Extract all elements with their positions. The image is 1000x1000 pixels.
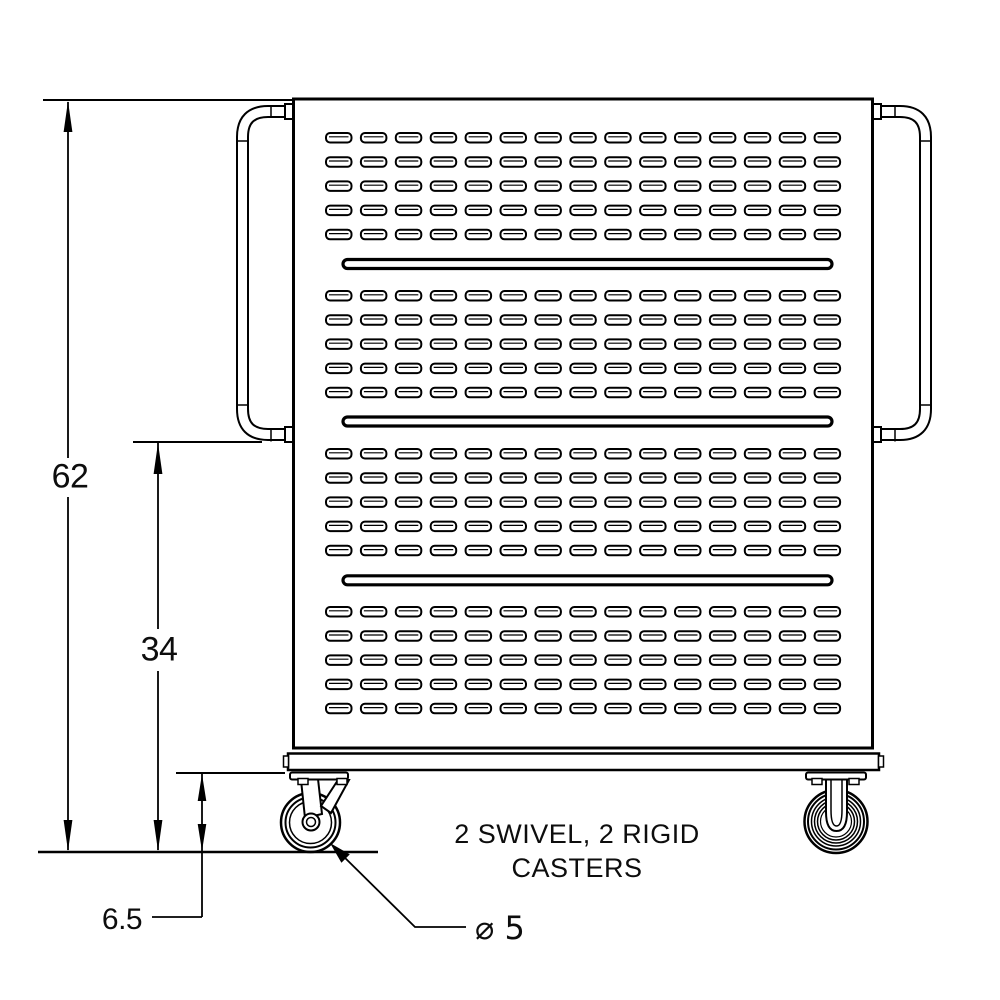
- vent-slot: [326, 291, 352, 301]
- vent-slot: [605, 546, 631, 556]
- vent-slot: [640, 315, 666, 325]
- vent-slot: [535, 704, 561, 714]
- vent-slot: [466, 388, 492, 398]
- vent-slot: [431, 181, 457, 191]
- vent-slot: [535, 364, 561, 374]
- vent-slot: [326, 364, 352, 374]
- right-handle: [873, 104, 932, 442]
- vent-slot: [501, 364, 527, 374]
- vent-slot: [535, 473, 561, 483]
- vent-slot: [780, 206, 806, 216]
- vent-slot: [501, 680, 527, 690]
- vent-slot: [361, 680, 387, 690]
- vent-slot: [466, 704, 492, 714]
- vent-slot: [710, 230, 736, 240]
- vent-slot: [780, 680, 806, 690]
- vent-slot: [745, 230, 771, 240]
- vent-slot: [501, 157, 527, 167]
- vent-slot: [815, 497, 841, 507]
- vent-slot: [710, 704, 736, 714]
- vent-slot: [431, 607, 457, 617]
- vent-slot: [815, 473, 841, 483]
- vent-slot: [466, 655, 492, 665]
- vent-slot: [675, 230, 701, 240]
- vent-slot: [745, 157, 771, 167]
- vent-slot: [815, 339, 841, 349]
- vent-slot: [466, 449, 492, 459]
- vent-slot: [780, 704, 806, 714]
- vent-slot: [710, 497, 736, 507]
- vent-slot: [675, 522, 701, 532]
- vent-slot: [780, 655, 806, 665]
- vent-slot: [535, 631, 561, 641]
- vent-slot: [815, 206, 841, 216]
- vent-slot: [361, 704, 387, 714]
- vent-slot: [326, 473, 352, 483]
- caster-diameter-label: ⌀ 5: [475, 909, 525, 947]
- vent-slot: [326, 546, 352, 556]
- base-rail-left-tab: [284, 756, 289, 767]
- vent-slot: [640, 546, 666, 556]
- vent-slot: [640, 230, 666, 240]
- left-handle: [237, 104, 294, 442]
- vent-slot: [640, 631, 666, 641]
- vent-slot: [361, 607, 387, 617]
- vent-slot: [501, 631, 527, 641]
- vent-slot: [640, 364, 666, 374]
- vent-slot: [326, 680, 352, 690]
- vent-slot: [780, 473, 806, 483]
- vent-slot: [361, 291, 387, 301]
- vent-slot: [780, 607, 806, 617]
- vent-slot: [605, 607, 631, 617]
- vent-slot: [361, 473, 387, 483]
- vent-slot: [466, 339, 492, 349]
- vent-slot: [745, 680, 771, 690]
- vent-slot: [361, 522, 387, 532]
- vent-slot: [815, 291, 841, 301]
- vent-slot: [745, 206, 771, 216]
- vent-slot: [710, 449, 736, 459]
- vent-slot: [745, 704, 771, 714]
- vent-slot: [466, 546, 492, 556]
- vent-slot: [640, 607, 666, 617]
- arrow-down: [64, 820, 73, 851]
- vent-slot: [815, 522, 841, 532]
- vent-slot: [466, 206, 492, 216]
- vent-slot: [640, 449, 666, 459]
- vent-slot: [745, 291, 771, 301]
- vent-slot: [605, 497, 631, 507]
- overall-height-label: 62: [52, 458, 89, 497]
- rigid-fork: [826, 777, 847, 831]
- vent-slot: [710, 473, 736, 483]
- vent-slot: [535, 497, 561, 507]
- vent-slot: [535, 230, 561, 240]
- caster-note: 2 SWIVEL, 2 RIGID CASTERS: [454, 817, 700, 885]
- vent-slot: [675, 607, 701, 617]
- vent-slot: [675, 704, 701, 714]
- vent-slot: [710, 546, 736, 556]
- arrow-up: [154, 443, 163, 474]
- vent-slot: [361, 157, 387, 167]
- vent-slot: [361, 655, 387, 665]
- long-vent-slot: [343, 260, 832, 269]
- vent-slot: [326, 497, 352, 507]
- vent-slot: [675, 364, 701, 374]
- vent-slot: [326, 157, 352, 167]
- vent-slot: [780, 546, 806, 556]
- vent-slot: [640, 522, 666, 532]
- vent-slot: [710, 157, 736, 167]
- vent-slot: [361, 449, 387, 459]
- vent-slot: [605, 655, 631, 665]
- vent-slot: [570, 473, 596, 483]
- vent-slot: [326, 522, 352, 532]
- vent-slot: [501, 704, 527, 714]
- vent-slot: [431, 133, 457, 143]
- vent-slot: [815, 388, 841, 398]
- vent-slot: [605, 181, 631, 191]
- arrow-up: [64, 101, 73, 132]
- vent-slot: [780, 449, 806, 459]
- vent-slot: [326, 181, 352, 191]
- vent-slot: [396, 680, 422, 690]
- caster-height-label: 6.5: [102, 903, 142, 937]
- vent-slot: [640, 680, 666, 690]
- arrow-down: [154, 820, 163, 851]
- vent-slot: [675, 449, 701, 459]
- vent-slot: [780, 364, 806, 374]
- vent-slot: [501, 449, 527, 459]
- vent-slot: [675, 315, 701, 325]
- vent-slot: [535, 655, 561, 665]
- vent-slot: [570, 680, 596, 690]
- vent-slot: [501, 388, 527, 398]
- vent-slot: [605, 339, 631, 349]
- vent-slot: [675, 631, 701, 641]
- vent-slot: [640, 339, 666, 349]
- vent-slot: [675, 157, 701, 167]
- vent-slot: [710, 181, 736, 191]
- vent-slot: [710, 607, 736, 617]
- right-handle-top-bracket: [873, 104, 881, 119]
- rigid-caster: [805, 773, 868, 854]
- vent-slot: [570, 704, 596, 714]
- vent-slot: [535, 133, 561, 143]
- vent-slot: [535, 339, 561, 349]
- vent-slot: [431, 230, 457, 240]
- vent-slot: [501, 206, 527, 216]
- vent-slot: [675, 388, 701, 398]
- vent-slot: [710, 522, 736, 532]
- vent-slot: [535, 157, 561, 167]
- vent-slot: [815, 364, 841, 374]
- vent-slot: [501, 181, 527, 191]
- vent-slot: [535, 206, 561, 216]
- vent-slot: [780, 181, 806, 191]
- vent-slot: [570, 497, 596, 507]
- right-handle-bottom-bracket: [873, 427, 881, 442]
- vent-slot: [745, 449, 771, 459]
- vent-slot: [361, 497, 387, 507]
- vent-slot: [605, 388, 631, 398]
- vent-slot: [466, 497, 492, 507]
- vent-slot: [431, 522, 457, 532]
- vent-slot: [361, 546, 387, 556]
- vent-slot: [710, 315, 736, 325]
- vent-slot: [675, 291, 701, 301]
- vent-slot: [570, 206, 596, 216]
- vent-slot: [466, 364, 492, 374]
- vent-slot: [745, 339, 771, 349]
- vent-slot: [501, 546, 527, 556]
- vent-slot: [535, 388, 561, 398]
- vent-slot: [326, 631, 352, 641]
- vent-slot: [535, 607, 561, 617]
- vent-slot: [570, 364, 596, 374]
- vent-slot: [396, 157, 422, 167]
- vent-slot: [815, 315, 841, 325]
- vent-slot: [640, 388, 666, 398]
- vent-slot: [396, 364, 422, 374]
- vent-slot: [501, 522, 527, 532]
- vent-slot: [361, 315, 387, 325]
- vent-slot: [570, 230, 596, 240]
- vent-slot: [675, 133, 701, 143]
- vent-slot: [466, 315, 492, 325]
- cart-body: [38, 99, 932, 853]
- vent-slot: [675, 473, 701, 483]
- vent-slot: [431, 704, 457, 714]
- vent-slot: [745, 546, 771, 556]
- vent-slot: [605, 680, 631, 690]
- vent-slot: [640, 133, 666, 143]
- vent-slot: [745, 607, 771, 617]
- left-handle-bottom-bracket: [285, 427, 293, 442]
- diameter-leader: [330, 843, 466, 927]
- vent-slot: [745, 655, 771, 665]
- vent-slot: [570, 388, 596, 398]
- vent-slot: [745, 364, 771, 374]
- vent-slot: [396, 230, 422, 240]
- vent-slot: [780, 339, 806, 349]
- vent-slot: [466, 181, 492, 191]
- vent-slot: [780, 133, 806, 143]
- vent-slot: [361, 230, 387, 240]
- vent-slot: [675, 497, 701, 507]
- vent-slot: [396, 497, 422, 507]
- vent-slot: [710, 133, 736, 143]
- vent-slot: [815, 607, 841, 617]
- vent-slot: [501, 291, 527, 301]
- vent-slot: [431, 497, 457, 507]
- vent-slot: [466, 291, 492, 301]
- vent-slot: [570, 181, 596, 191]
- vent-slot: [780, 230, 806, 240]
- vent-slot: [640, 473, 666, 483]
- vent-slot: [570, 339, 596, 349]
- vent-slot: [396, 339, 422, 349]
- vent-slot: [570, 607, 596, 617]
- vent-slot: [570, 157, 596, 167]
- vent-slot: [745, 473, 771, 483]
- vent-slot: [396, 388, 422, 398]
- vent-slot: [396, 631, 422, 641]
- vent-slot: [535, 522, 561, 532]
- vent-slot: [326, 388, 352, 398]
- vent-slot: [780, 522, 806, 532]
- vent-slot: [535, 680, 561, 690]
- vent-slot: [396, 704, 422, 714]
- vent-slot: [815, 704, 841, 714]
- vent-slot: [815, 181, 841, 191]
- vent-slot: [710, 364, 736, 374]
- vent-slot: [570, 291, 596, 301]
- vent-slot: [570, 631, 596, 641]
- handle-height-label: 34: [141, 631, 178, 670]
- vent-slot: [501, 339, 527, 349]
- vent-slot: [466, 230, 492, 240]
- vent-slot: [466, 607, 492, 617]
- vent-slot: [466, 473, 492, 483]
- vent-slot: [431, 315, 457, 325]
- vent-slot: [396, 291, 422, 301]
- long-vent-slot: [343, 417, 832, 426]
- vent-slot: [396, 206, 422, 216]
- vent-slot: [745, 497, 771, 507]
- vent-slot: [361, 631, 387, 641]
- vent-slot: [326, 133, 352, 143]
- vent-slot: [745, 315, 771, 325]
- vent-slot: [501, 133, 527, 143]
- vent-slot: [361, 133, 387, 143]
- vent-slot: [815, 157, 841, 167]
- vent-slot: [710, 680, 736, 690]
- vent-slot: [501, 230, 527, 240]
- vent-slot: [605, 157, 631, 167]
- vent-slot: [780, 388, 806, 398]
- vent-slot: [605, 473, 631, 483]
- vent-slot: [815, 631, 841, 641]
- vent-slot: [710, 388, 736, 398]
- vent-slot: [535, 449, 561, 459]
- vent-slot: [780, 315, 806, 325]
- vent-slot: [675, 206, 701, 216]
- vent-slot: [431, 291, 457, 301]
- vent-slot: [710, 631, 736, 641]
- vent-slot: [605, 206, 631, 216]
- vent-slot: [745, 631, 771, 641]
- vent-slot: [466, 680, 492, 690]
- vent-slot: [815, 133, 841, 143]
- vent-slot: [396, 449, 422, 459]
- vent-slot: [710, 206, 736, 216]
- vent-slot: [501, 315, 527, 325]
- vent-slot: [396, 546, 422, 556]
- vent-slot: [640, 655, 666, 665]
- vent-slot: [605, 704, 631, 714]
- vent-slot: [605, 631, 631, 641]
- vent-slot: [640, 181, 666, 191]
- vent-slot: [466, 631, 492, 641]
- vent-slot: [570, 315, 596, 325]
- vent-slot: [640, 206, 666, 216]
- base-rail: [284, 754, 884, 771]
- vent-slot: [431, 388, 457, 398]
- vent-slot: [780, 497, 806, 507]
- vent-slot: [501, 607, 527, 617]
- vent-slot: [605, 522, 631, 532]
- vent-slot: [326, 339, 352, 349]
- vent-slot: [570, 133, 596, 143]
- vent-slot: [396, 522, 422, 532]
- vent-slot: [815, 230, 841, 240]
- vent-slot: [675, 680, 701, 690]
- vent-slot: [605, 364, 631, 374]
- vent-slot: [745, 181, 771, 191]
- caster-note-line2: CASTERS: [454, 851, 700, 885]
- vent-slot: [431, 339, 457, 349]
- vent-slot: [675, 546, 701, 556]
- vent-slot: [431, 546, 457, 556]
- arrow-down: [198, 824, 207, 851]
- vent-slot: [326, 206, 352, 216]
- vent-slot: [361, 206, 387, 216]
- vent-slot: [361, 364, 387, 374]
- vent-slot: [780, 631, 806, 641]
- vent-slot: [396, 607, 422, 617]
- vent-slot: [605, 449, 631, 459]
- vent-slot: [570, 546, 596, 556]
- vent-slot: [326, 315, 352, 325]
- vent-slot: [396, 655, 422, 665]
- vent-slot: [431, 680, 457, 690]
- vent-slot: [431, 157, 457, 167]
- vent-slot: [361, 181, 387, 191]
- vent-slot: [535, 291, 561, 301]
- vent-slot: [570, 449, 596, 459]
- vent-slot: [675, 181, 701, 191]
- vent-slot: [535, 181, 561, 191]
- arrow-up: [198, 774, 207, 801]
- left-handle-top-bracket: [285, 104, 293, 119]
- vent-slot: [501, 655, 527, 665]
- vent-slot: [466, 157, 492, 167]
- vent-slot: [745, 522, 771, 532]
- vent-slot: [396, 133, 422, 143]
- vent-slot: [815, 655, 841, 665]
- vent-slot: [431, 473, 457, 483]
- vent-slot: [605, 315, 631, 325]
- vent-slot: [815, 449, 841, 459]
- vent-slot: [745, 388, 771, 398]
- vent-slot: [710, 339, 736, 349]
- dimension-6-5: [152, 773, 285, 917]
- vent-slot: [675, 655, 701, 665]
- vent-slot: [745, 133, 771, 143]
- vent-slot: [535, 546, 561, 556]
- vent-slot: [431, 449, 457, 459]
- vent-slot: [815, 546, 841, 556]
- vent-slot: [710, 291, 736, 301]
- vent-slot: [431, 206, 457, 216]
- vent-slot: [780, 291, 806, 301]
- vent-slot: [675, 339, 701, 349]
- caster-note-line1: 2 SWIVEL, 2 RIGID: [454, 817, 700, 851]
- vent-slot: [605, 133, 631, 143]
- vent-slot: [431, 655, 457, 665]
